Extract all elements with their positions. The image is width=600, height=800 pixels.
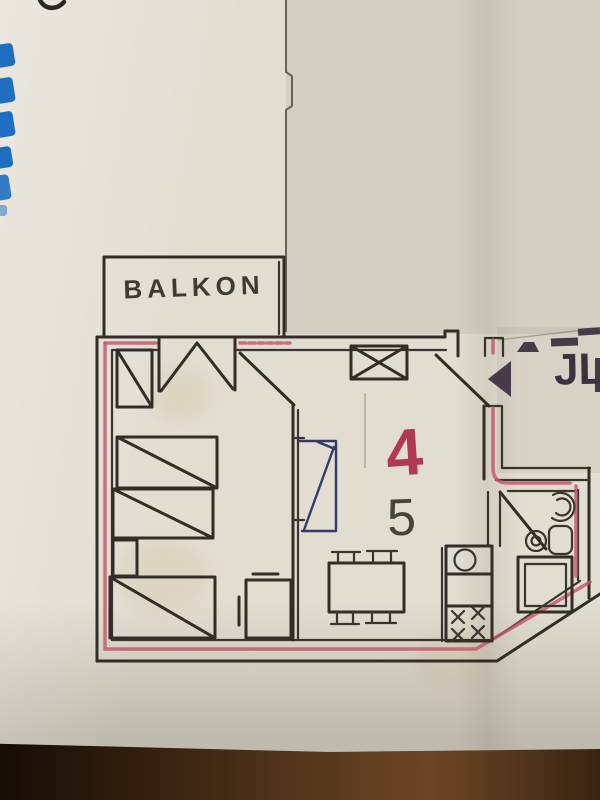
arrow-left-icon [488,361,511,397]
pen-curve-top [40,0,64,8]
bedroom-door-swing [240,353,294,405]
bathroom-door-swing [500,492,546,549]
stove-burners-icon [452,607,484,641]
black-number: 5 [386,492,417,545]
nightstand-icon [113,540,137,576]
kitchen-unit-icon [442,546,492,641]
balcony-door-symbol [159,337,235,391]
cabinet-icon [239,574,291,638]
washbasin-icon [526,526,572,554]
paper-edge-lines [286,0,600,468]
bed-icon [110,577,215,638]
entry-door-swing [436,355,489,406]
bed-icon [117,437,217,488]
bar-mark [578,327,600,336]
sofa-icon [299,441,336,531]
toilet-icon [552,493,574,521]
floor-plan-drawing [0,0,600,800]
red-unit-number: 4 [384,418,425,486]
bed-icon [113,489,213,538]
balcony-label: BALKON [118,271,271,302]
blue-edge-marks [0,43,16,216]
dining-table-icon [329,551,404,624]
partial-handwriting-right: JL [554,348,600,393]
wardrobe-icon [117,350,152,407]
trapezoid-mark [517,342,539,352]
sink-circle [455,550,476,571]
photo-of-floor-plan: BALKON 4 5 JL [0,0,600,800]
